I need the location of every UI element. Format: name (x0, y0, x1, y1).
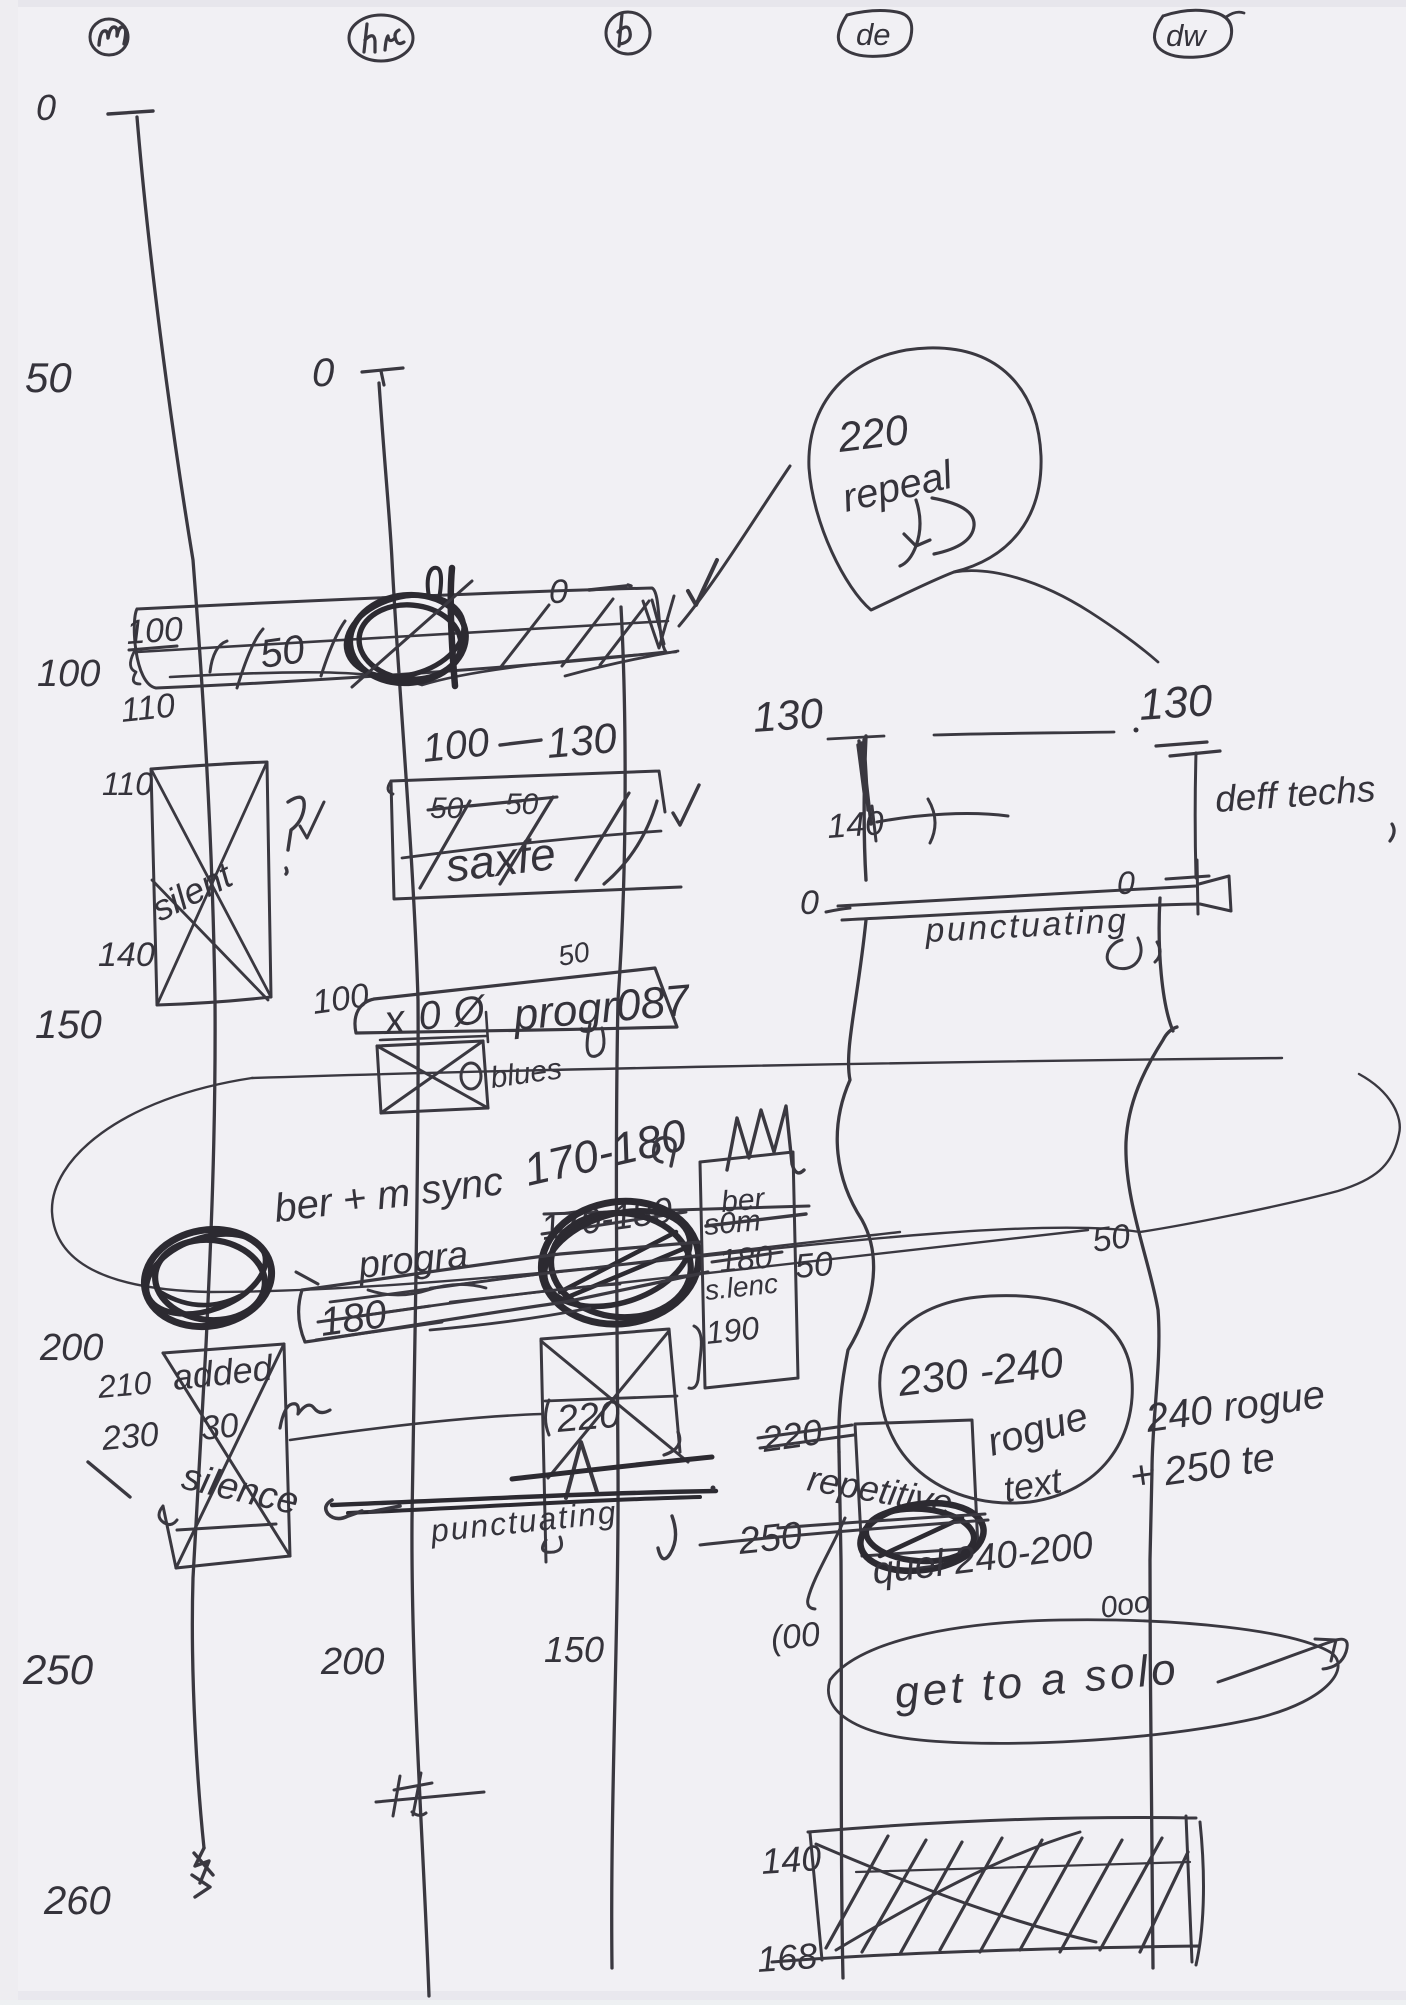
svg-text:110: 110 (119, 686, 177, 729)
svg-text:0: 0 (800, 884, 819, 922)
svg-text:50: 50 (1090, 1217, 1133, 1260)
svg-text:100: 100 (310, 976, 372, 1022)
svg-text:0: 0 (312, 351, 334, 395)
svg-text:100: 100 (420, 720, 491, 771)
svg-text:220: 220 (834, 406, 911, 461)
svg-text:130: 130 (545, 714, 620, 767)
svg-text:140: 140 (98, 936, 155, 974)
svg-text:30: 30 (199, 1406, 241, 1448)
svg-text:50: 50 (257, 627, 307, 677)
svg-text:0: 0 (1117, 865, 1135, 901)
svg-text:190: 190 (704, 1310, 761, 1351)
svg-text:50: 50 (793, 1245, 834, 1286)
svg-text:260: 260 (43, 1879, 111, 1923)
svg-text:100: 100 (37, 653, 100, 695)
svg-text:168: 168 (756, 1935, 819, 1980)
svg-text:(00: (00 (769, 1615, 822, 1658)
svg-text:50: 50 (556, 936, 592, 972)
svg-text:0: 0 (36, 87, 56, 128)
svg-text:210: 210 (95, 1364, 153, 1405)
svg-text:110: 110 (102, 766, 153, 802)
svg-text:150: 150 (544, 1629, 604, 1670)
svg-text:dw: dw (1166, 18, 1208, 53)
svg-text:de: de (856, 17, 890, 52)
svg-text:200: 200 (39, 1327, 103, 1369)
svg-text:250: 250 (22, 1646, 94, 1693)
svg-text:150: 150 (35, 1003, 102, 1047)
svg-text:200: 200 (320, 1641, 384, 1683)
svg-text:0: 0 (416, 993, 443, 1039)
svg-text:130: 130 (1137, 676, 1214, 730)
svg-text:130: 130 (751, 689, 825, 741)
svg-text:50: 50 (505, 788, 539, 821)
svg-text:50: 50 (25, 354, 72, 401)
svg-text:230: 230 (99, 1415, 160, 1458)
